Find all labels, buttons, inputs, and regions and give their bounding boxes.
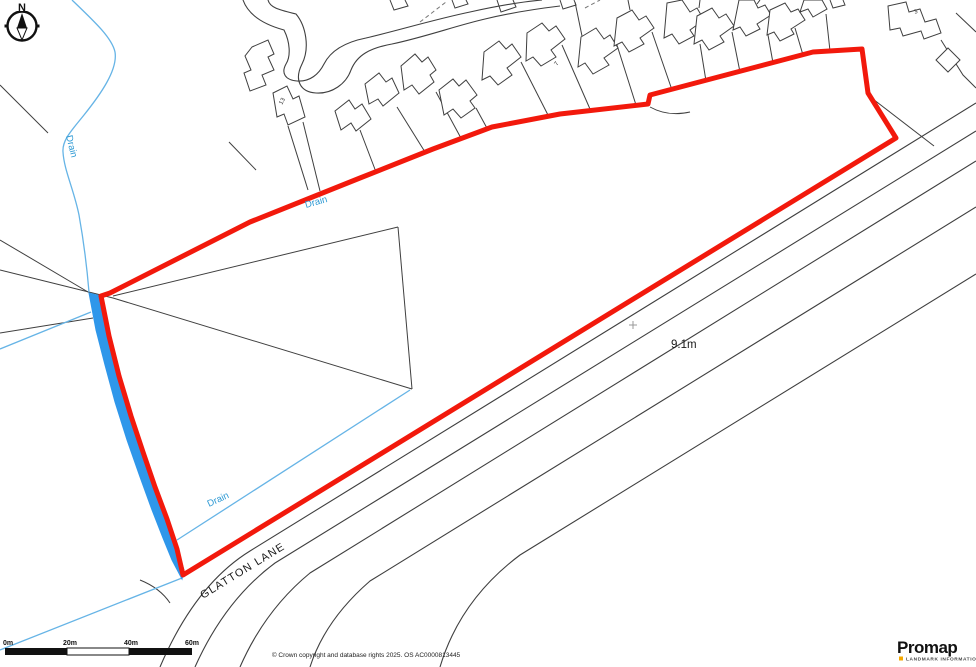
scale-tick-60: 60m (185, 640, 199, 647)
house-number-7: 7 (554, 60, 561, 67)
house (335, 100, 371, 131)
north-label: N (18, 2, 26, 14)
compass-needle-north (17, 13, 27, 28)
road-edge-1 (160, 103, 976, 667)
house (888, 2, 941, 39)
promap-logo: Promap LANDMARK INFORMATION (897, 638, 976, 663)
scale-tick-0: 0m (3, 640, 13, 647)
compass-pip-west (5, 25, 8, 28)
scale-segment-2 (67, 648, 129, 655)
house (482, 41, 521, 85)
north-arrow: N (5, 1, 40, 41)
parcel-lines (0, 85, 934, 389)
road-edge-2 (195, 131, 976, 667)
house (365, 73, 399, 106)
scale-segment-3 (129, 648, 192, 655)
map-text-labels: Drain Drain Drain GLATTON LANE 9.1m (63, 134, 696, 601)
drain-label-south: Drain (206, 490, 231, 510)
house (694, 8, 734, 50)
house-diamond (936, 48, 960, 72)
house (439, 79, 477, 118)
garden-line-a (288, 126, 308, 190)
track-segment (229, 142, 256, 170)
field-line-cross (398, 227, 412, 389)
field-line-west (0, 240, 88, 292)
house (733, 0, 771, 36)
copyright-text: © Crown copyright and database rights 20… (272, 651, 461, 659)
partial-roof (452, 0, 468, 8)
house (401, 54, 436, 94)
house (800, 0, 827, 17)
dashed-path-2 (585, 0, 600, 8)
house (614, 10, 654, 52)
house (767, 3, 805, 41)
field-line-inner (113, 227, 398, 296)
scale-bar: 0m 20m 40m 60m (3, 640, 199, 655)
scale-tick-40: 40m (124, 640, 138, 647)
landmark-dot-icon (899, 657, 903, 661)
road-edge-3 (240, 161, 976, 667)
field-line-lower (0, 270, 412, 389)
road-glatton-lane (140, 103, 976, 667)
road-edge-5 (440, 274, 976, 667)
scale-tick-20: 20m (63, 640, 77, 647)
landmark-tagline: LANDMARK INFORMATION (906, 657, 976, 663)
compass-pip-east (37, 25, 40, 28)
spot-height-label: 9.1m (671, 339, 697, 351)
garden-arc (650, 107, 690, 114)
house (244, 40, 274, 91)
map-canvas: 13 7 3 Drain Drain Drain GLATTON LANE 9.… (0, 0, 976, 667)
field-curve-northwest (0, 85, 48, 133)
scale-segment-1 (5, 648, 67, 655)
verge-curve (140, 580, 170, 603)
partial-roof (830, 0, 845, 8)
verge-line-corner (869, 96, 934, 146)
partial-roof (390, 0, 408, 10)
drain-line-southwest (0, 578, 182, 650)
house (578, 28, 618, 74)
house (273, 86, 305, 125)
spot-height-cross (629, 321, 637, 329)
partial-roof (560, 0, 576, 9)
compass-needle-south (17, 28, 27, 40)
drain-line-south (177, 390, 410, 540)
drain-label-west: Drain (63, 134, 79, 159)
promap-logo-text: Promap (897, 638, 957, 657)
drain-lines (0, 0, 410, 650)
ne-parcel-line-2 (956, 13, 976, 32)
house (526, 23, 565, 66)
site-plan-map: 13 7 3 Drain Drain Drain GLATTON LANE 9.… (0, 0, 976, 667)
